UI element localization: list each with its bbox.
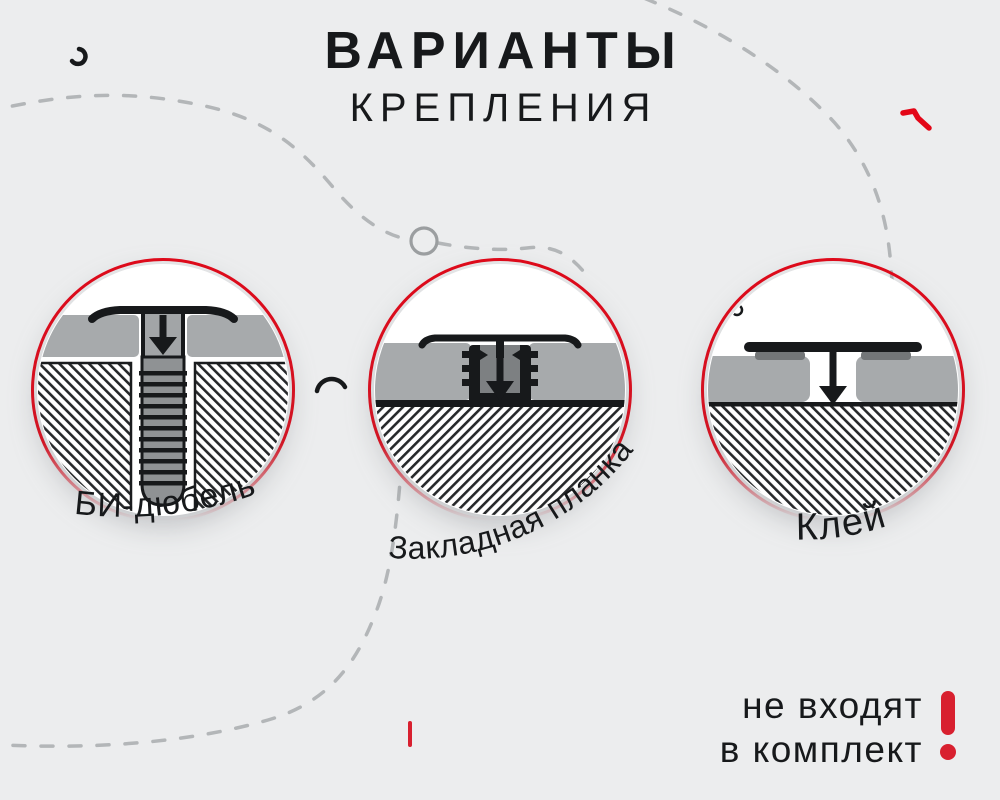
title-line-1: ВАРИАНТЫ: [0, 24, 1000, 79]
note-line-2: в комплект: [720, 728, 923, 772]
title-line-2: КРЕПЛЕНИЯ: [0, 87, 1000, 129]
not-included-note: не входят в комплект: [720, 684, 956, 771]
mounting-option-card-bi-dowel: БИ-дюбель: [28, 255, 298, 570]
note-text: не входят в комплект: [720, 684, 923, 771]
ground-line: [688, 402, 988, 407]
mounting-option-card-glue: Клей: [698, 255, 968, 570]
mounting-option-card-embedded-plank: Закладная планка: [365, 255, 635, 570]
page-title: ВАРИАНТЫ КРЕПЛЕНИЯ: [0, 24, 1000, 129]
black-small-arc: [317, 379, 345, 391]
stem-edge-right: [181, 313, 185, 361]
profile-top-bar: [744, 342, 922, 352]
bi-dowel-diagram: [20, 310, 306, 563]
infographic-mounting-options: ВАРИАНТЫ КРЕПЛЕНИЯ: [0, 0, 1000, 800]
stem-edge-left: [141, 313, 145, 361]
note-line-1: не входят: [720, 684, 923, 728]
exclamation-icon: [940, 684, 956, 771]
small-gray-ring: [411, 228, 437, 254]
